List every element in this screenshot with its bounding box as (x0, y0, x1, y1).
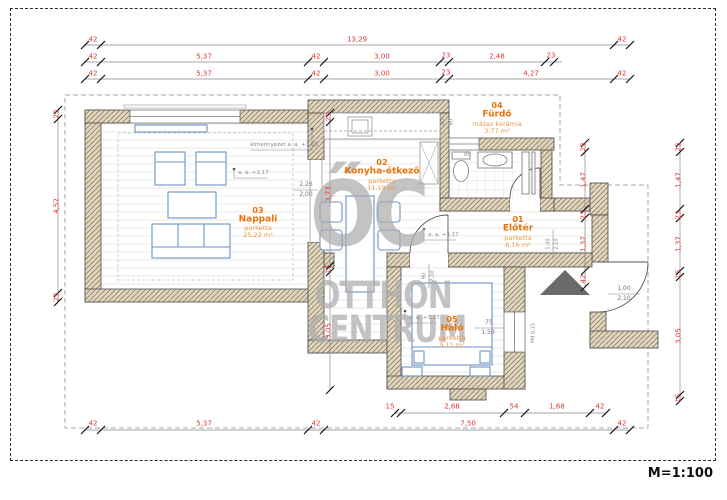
dim-label: 42 (618, 71, 627, 78)
bedroom-door-width: 90 (423, 273, 428, 279)
dim-label: 23 (581, 211, 588, 220)
height-note-bedroom: a. a. +3,17 (409, 316, 440, 322)
bed-window-height: 1,50 (481, 330, 494, 336)
dim-label: 3,73 (326, 186, 333, 202)
dim-label: 1,37 (581, 236, 588, 252)
wc-size: 80 (464, 153, 471, 159)
dim-label: 5,37 (196, 421, 212, 428)
duct-size-b: 60 (450, 119, 455, 125)
dim-label: 15 (386, 404, 395, 411)
dim-label: 4,52 (54, 198, 61, 214)
dim-label: 23 (581, 143, 588, 152)
dim-label: 42 (89, 421, 98, 428)
opening-height: 2,00 (299, 192, 312, 198)
dim-label: 1,68 (549, 404, 565, 411)
duct-size-a: 60 (442, 119, 447, 125)
dim-label: 23 (442, 53, 451, 60)
dim-label: 3,00 (374, 71, 390, 78)
room-area-konyha: 11,19 m² (367, 185, 397, 192)
height-note-living: a. a. +3,17 (238, 171, 269, 177)
dim-label: 23 (547, 53, 556, 60)
dim-label: 1,47 (581, 172, 588, 188)
dim-label: 15 (676, 394, 683, 403)
dim-label: 3,05 (326, 323, 333, 339)
bed-window-note: PM 0,15 (532, 323, 537, 343)
dim-label: 42 (618, 37, 627, 44)
room-area-furdo: 3,77 m² (484, 128, 509, 135)
ceiling-note: álmennyezet a. a. +3,06 (250, 143, 318, 149)
dim-label: 3,05 (676, 328, 683, 344)
scale-label: M=1:100 (648, 466, 713, 481)
hall-door-width: 1,00 (547, 238, 552, 249)
dim-label: 7,50 (460, 421, 476, 428)
dim-label: 4,27 (523, 71, 539, 78)
entry-door-width: 1,00 (617, 286, 630, 292)
dim-label: 15 (326, 265, 333, 274)
dim-label: 2,68 (444, 404, 460, 411)
room-area-nappali: 25,22 m² (243, 232, 273, 239)
dim-label: 42 (89, 37, 98, 44)
dim-label: 23 (676, 211, 683, 220)
floorplan-page: ŐC OTTHON CENTRUM 42 13,29 42 42 5,37 42… (0, 0, 727, 500)
dim-label: 42 (312, 421, 321, 428)
dim-label: 5,37 (196, 54, 212, 61)
dim-label: 42 (89, 54, 98, 61)
room-name-eloter: Előtér (503, 225, 533, 234)
dim-label: 42 (581, 275, 588, 284)
dim-label: 42 (312, 71, 321, 78)
dim-label: 13,29 (347, 37, 367, 44)
dim-label: 42 (89, 71, 98, 78)
opening-width: 2,26 (299, 182, 312, 188)
dim-label: 1,47 (676, 172, 683, 188)
dim-label: 42 (596, 404, 605, 411)
dim-label: 23 (54, 293, 61, 302)
room-area-halo: 9,11 m² (439, 342, 464, 349)
dim-label: 15 (676, 270, 683, 279)
bed-window-width: 75 (485, 320, 493, 326)
dim-label: 3,00 (374, 54, 390, 61)
entry-door-height: 2,10 (617, 296, 630, 302)
hall-door-height: 2,10 (555, 238, 560, 249)
dim-label: 42 (312, 54, 321, 61)
dim-label: 5,37 (196, 71, 212, 78)
dim-label: 2,48 (489, 54, 505, 61)
bedroom-door-height: 2,10 (431, 270, 436, 281)
dim-label: 23 (54, 110, 61, 119)
dim-label: 54 (510, 404, 519, 411)
room-name-konyha: Konyha-étkező (344, 168, 419, 177)
dim-label: 23 (676, 143, 683, 152)
dim-label: 1,37 (676, 236, 683, 252)
height-note-hall: a. a. +3,17 (428, 233, 459, 239)
dim-label: 23 (326, 113, 333, 122)
dim-label: 42 (618, 421, 627, 428)
room-name-furdo: Fürdő (482, 111, 511, 120)
dim-label: 23 (442, 70, 451, 77)
room-area-eloter: 6,16 m² (505, 242, 530, 249)
room-name-halo: Háló (441, 325, 464, 334)
